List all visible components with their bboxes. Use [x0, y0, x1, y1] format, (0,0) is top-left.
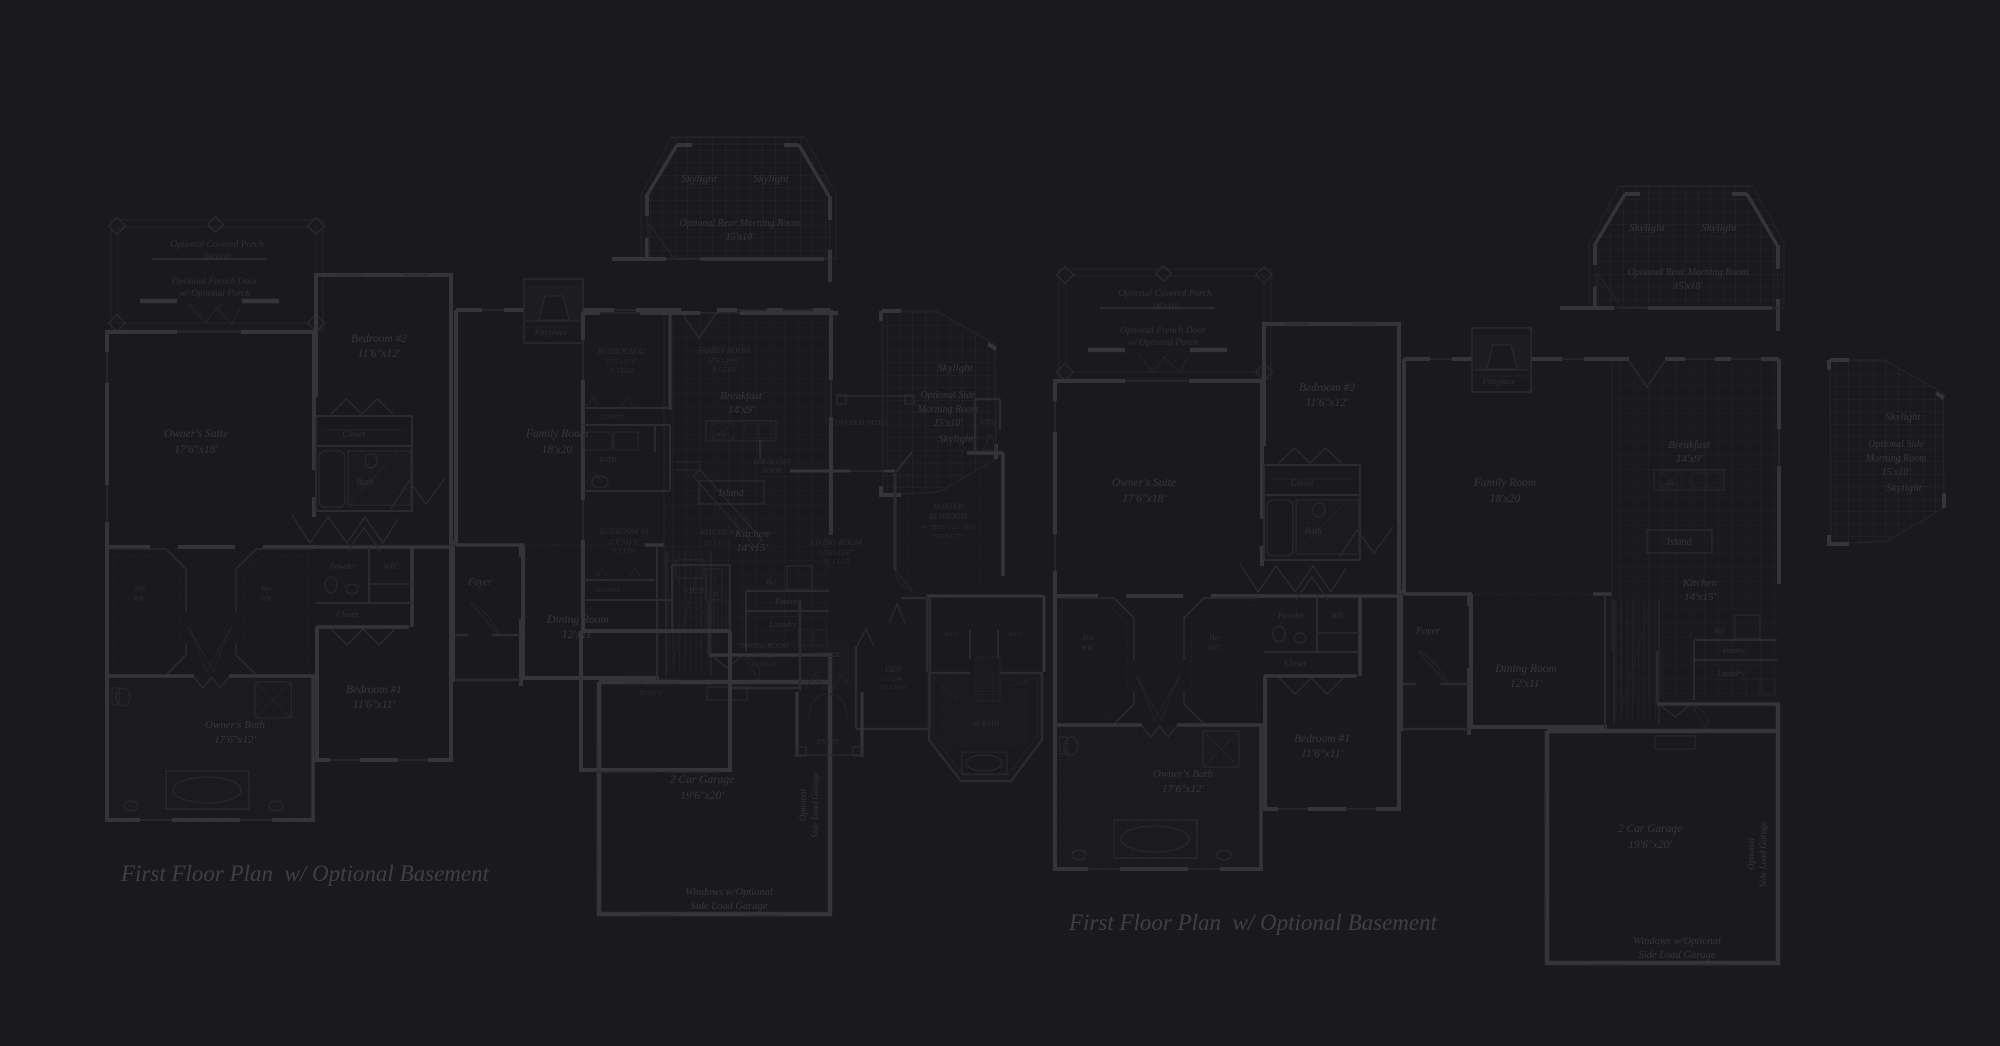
svg-text:CLOSET: CLOSET [600, 414, 624, 421]
svg-text:12' CLGS: 12' CLGS [751, 661, 777, 668]
svg-text:ENTRY: ENTRY [816, 737, 840, 746]
svg-text:DEN: DEN [884, 665, 902, 674]
svg-text:CLOSET: CLOSET [596, 587, 620, 594]
svg-text:11'6"x11'6": 11'6"x11'6" [606, 358, 638, 366]
svg-text:M. BATH: M. BATH [972, 720, 1001, 728]
svg-text:3 CAR GARAGE: 3 CAR GARAGE [624, 677, 679, 686]
svg-text:W.I.C.: W.I.C. [1008, 631, 1025, 638]
svg-text:W: W [713, 576, 718, 582]
svg-text:FAMILY ROOM: FAMILY ROOM [697, 346, 751, 355]
svg-text:BATH: BATH [599, 456, 617, 464]
svg-text:KITCHEN: KITCHEN [699, 528, 734, 537]
svg-text:13'x14': 13'x14' [884, 676, 903, 683]
svg-text:W.I.C.: W.I.C. [944, 631, 961, 638]
svg-text:9' CLGS: 9' CLGS [712, 366, 736, 374]
svg-text:10' CLGS: 10' CLGS [703, 539, 731, 547]
svg-text:9' CLGS: 9' CLGS [612, 547, 636, 555]
svg-text:BATH: BATH [979, 418, 997, 426]
svg-text:DINING ROOM: DINING ROOM [738, 641, 789, 650]
svg-text:BEDROOM #2: BEDROOM #2 [598, 347, 647, 356]
svg-text:BEDROOM: BEDROOM [929, 512, 969, 521]
svg-text:MASTER: MASTER [932, 502, 963, 511]
svg-text:LIVING ROOM: LIVING ROOM [810, 538, 863, 547]
svg-text:11'6"x13': 11'6"x13' [752, 653, 777, 660]
svg-text:9' CLGS: 9' CLGS [610, 367, 634, 375]
svg-text:12' CLGS: 12' CLGS [880, 684, 906, 691]
svg-text:NOOK: NOOK [761, 467, 782, 475]
svg-text:13'6"x17'6": 13'6"x17'6" [933, 533, 964, 540]
svg-text:17'6"x19'6": 17'6"x19'6" [708, 357, 741, 365]
svg-text:FOYER: FOYER [815, 650, 840, 659]
svg-text:COVERED PATIO: COVERED PATIO [830, 418, 887, 427]
svg-text:BREAKFAST: BREAKFAST [754, 458, 792, 466]
svg-text:BEDROOM #3: BEDROOM #3 [600, 527, 649, 536]
svg-text:W/ TREY CLG AND: W/ TREY CLG AND [922, 524, 975, 531]
svg-text:11'6"x11'6": 11'6"x11'6" [608, 538, 640, 546]
svg-text:20'x31'6": 20'x31'6" [639, 689, 666, 697]
svg-text:17'6"x13'6": 17'6"x13'6" [820, 549, 853, 557]
svg-text:12' CLGS: 12' CLGS [822, 558, 850, 566]
